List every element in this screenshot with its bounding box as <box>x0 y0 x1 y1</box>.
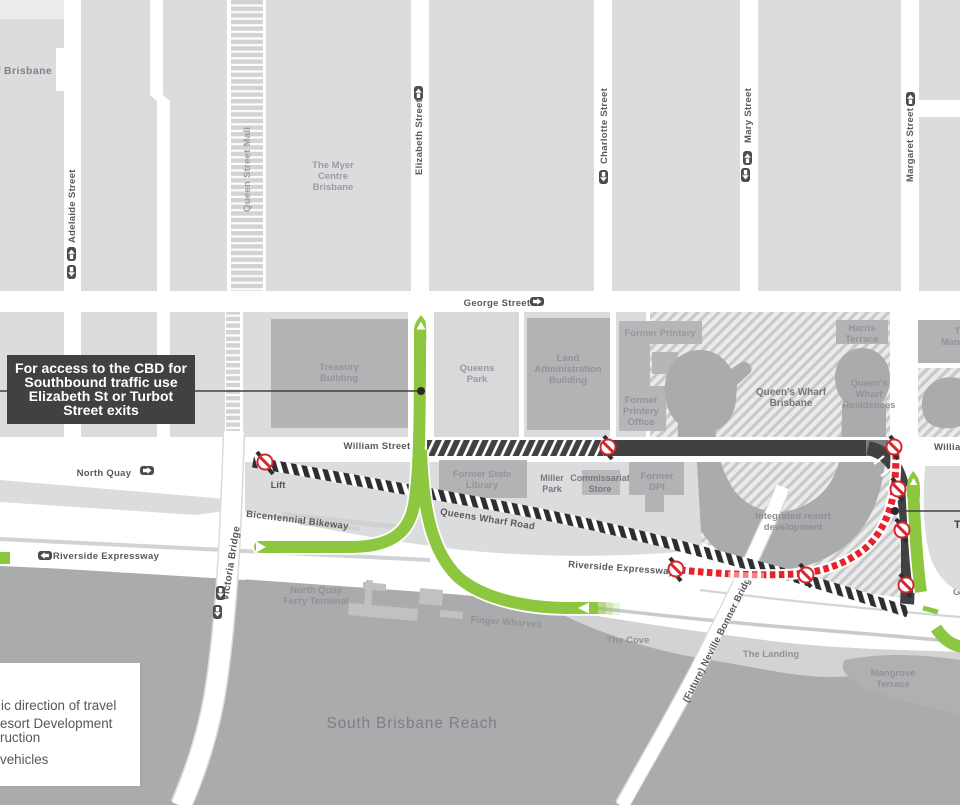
svg-text:Administration: Administration <box>534 364 601 375</box>
svg-text:Centre: Centre <box>318 171 348 182</box>
svg-text:Library: Library <box>466 480 499 491</box>
svg-text:Ferry Terminal: Ferry Terminal <box>283 596 348 607</box>
svg-text:Queen's: Queen's <box>850 378 887 389</box>
svg-text:Building: Building <box>549 375 587 386</box>
svg-text:Riverside Expressway: Riverside Expressway <box>53 551 160 562</box>
svg-text:Miller: Miller <box>540 473 564 483</box>
svg-text:South Brisbane Reach: South Brisbane Reach <box>326 715 497 732</box>
svg-text:Former Printery: Former Printery <box>624 328 696 339</box>
svg-text:Adelaide Street: Adelaide Street <box>67 169 78 243</box>
svg-text:Wharf: Wharf <box>856 389 884 400</box>
svg-text:Former: Former <box>625 395 658 406</box>
svg-text:William Street: William Street <box>344 441 411 452</box>
svg-text:Queen Street Mall: Queen Street Mall <box>242 127 253 212</box>
svg-text:Terrace: Terrace <box>876 679 910 690</box>
svg-text:Mary Street: Mary Street <box>743 87 754 143</box>
svg-text:Printery: Printery <box>623 406 660 417</box>
svg-text:Mangrove: Mangrove <box>871 668 916 679</box>
svg-text:The Myer: The Myer <box>312 160 354 171</box>
svg-text:Brisbane: Brisbane <box>313 182 354 193</box>
svg-text:Queens: Queens <box>460 363 495 374</box>
svg-text:Treasury: Treasury <box>319 362 359 373</box>
svg-text:Former State: Former State <box>453 469 512 480</box>
svg-text:Office: Office <box>628 417 655 428</box>
svg-text:Terrace: Terrace <box>845 334 879 345</box>
svg-text:Store: Store <box>588 484 611 494</box>
svg-text:The Cove: The Cove <box>607 635 650 646</box>
svg-text:Park: Park <box>467 374 488 385</box>
svg-text:North Quay: North Quay <box>290 585 342 596</box>
svg-text:Integrated resort: Integrated resort <box>755 511 831 522</box>
svg-text:Park: Park <box>542 484 563 494</box>
svg-text:T: T <box>954 519 960 531</box>
svg-text:Building: Building <box>320 373 358 384</box>
svg-text:ic direction of travel: ic direction of travel <box>1 698 116 713</box>
svg-text:Former: Former <box>641 471 674 482</box>
svg-text:Land: Land <box>557 353 580 364</box>
svg-text:vehicles: vehicles <box>0 752 49 767</box>
svg-text:The Landing: The Landing <box>743 649 800 660</box>
svg-text:Charlotte Street: Charlotte Street <box>599 87 610 164</box>
svg-text:Queen's Wharf: Queen's Wharf <box>756 387 827 398</box>
svg-text:North Quay: North Quay <box>77 468 132 479</box>
svg-text:development: development <box>764 522 823 533</box>
svg-text:Brisbane: Brisbane <box>770 398 813 409</box>
svg-text:Harris: Harris <box>848 323 875 334</box>
svg-text:of Brisbane: of Brisbane <box>0 65 52 77</box>
svg-text:Margaret Street: Margaret Street <box>905 107 916 182</box>
svg-text:George Street: George Street <box>464 298 531 309</box>
svg-text:Mansions: Mansions <box>941 337 960 348</box>
svg-text:Street exits: Street exits <box>63 402 139 418</box>
svg-text:Elizabeth Street: Elizabeth Street <box>414 98 425 175</box>
svg-text:The: The <box>955 326 960 337</box>
svg-text:William S: William S <box>934 442 960 453</box>
svg-text:DPI: DPI <box>649 482 665 493</box>
svg-text:Lift: Lift <box>271 480 287 491</box>
svg-text:esort Development: esort Development <box>0 716 113 731</box>
svg-text:Residences: Residences <box>843 400 896 411</box>
svg-text:Commissariat: Commissariat <box>570 473 630 483</box>
svg-text:ruction: ruction <box>0 730 40 745</box>
